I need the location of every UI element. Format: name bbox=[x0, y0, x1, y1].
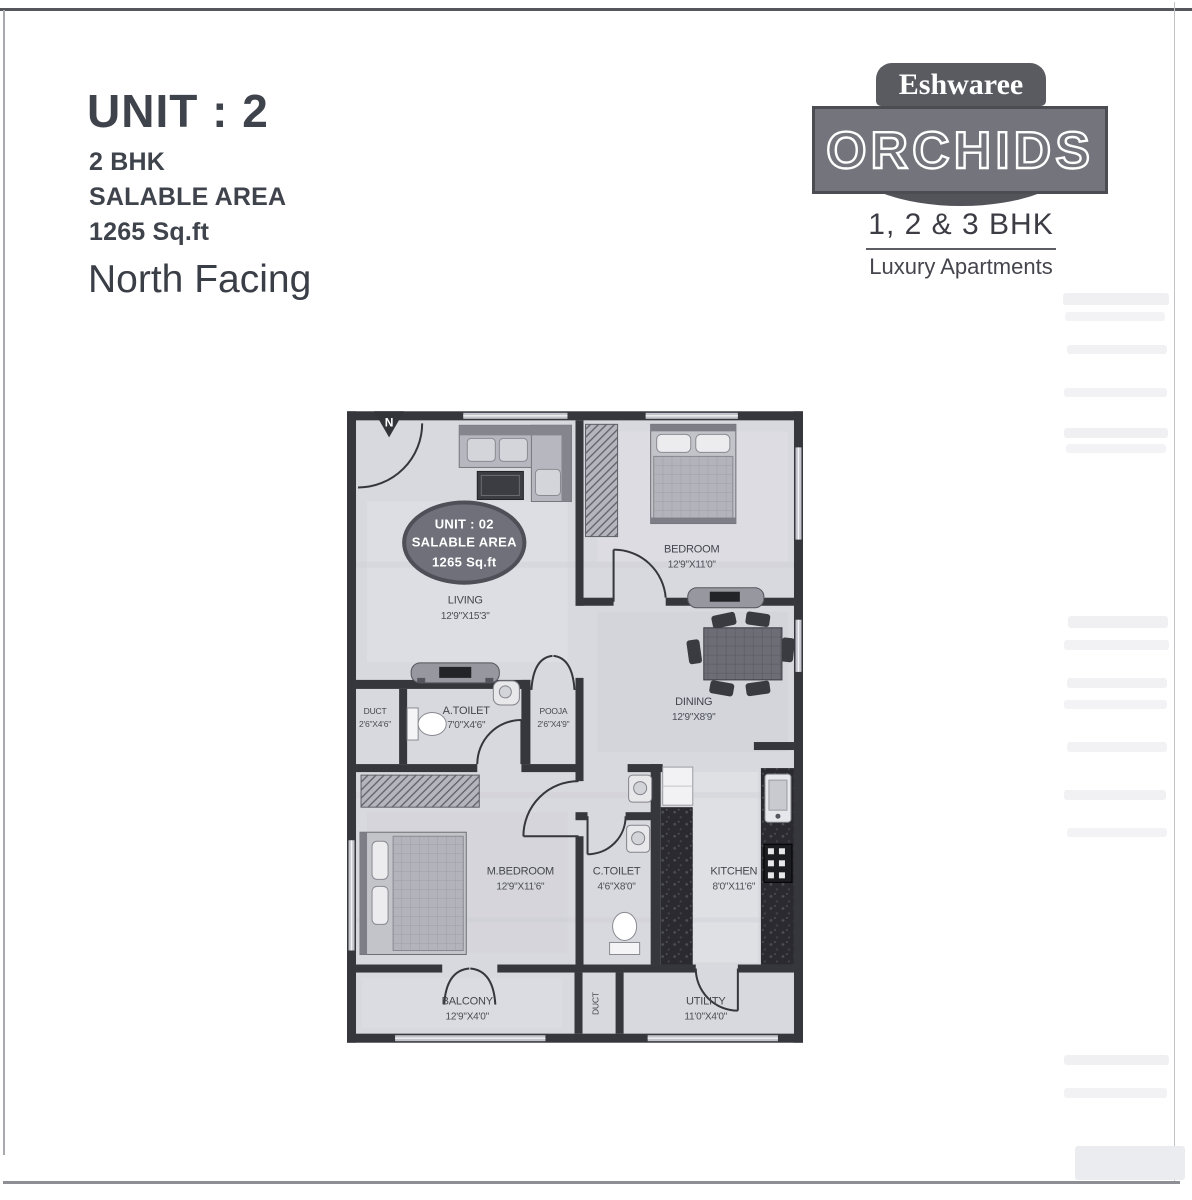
badge-line3: 1265 Sq.ft bbox=[432, 555, 497, 570]
wardrobe-mbedroom bbox=[361, 775, 479, 807]
project-logo: Eshwaree ORCHIDS 1, 2 & 3 BHK Luxury Apa… bbox=[810, 60, 1112, 285]
room-dims-pooja: 2'6"X4'9" bbox=[537, 719, 569, 729]
logo-rule bbox=[866, 248, 1056, 250]
room-dims-bedroom: 12'9"X11'0" bbox=[668, 560, 717, 571]
scan-artifact bbox=[1064, 1055, 1169, 1065]
scan-artifact bbox=[1065, 312, 1165, 321]
salable-area-label: SALABLE AREA bbox=[89, 183, 286, 212]
wardrobe-bedroom bbox=[586, 424, 618, 536]
room-label-pooja: POOJA bbox=[540, 706, 568, 716]
bed-bedroom bbox=[651, 424, 736, 523]
badge-line2: SALABLE AREA bbox=[412, 535, 517, 550]
badge-line1: UNIT : 02 bbox=[435, 517, 494, 532]
room-label-bedroom: BEDROOM bbox=[664, 544, 720, 556]
wash-basin bbox=[627, 825, 650, 852]
page-border-bottom bbox=[3, 1181, 1180, 1184]
scan-artifact bbox=[1068, 616, 1168, 628]
bed-mbedroom bbox=[360, 832, 466, 954]
kitchen-hob bbox=[764, 844, 792, 882]
room-label-mbedroom: M.BEDROOM bbox=[487, 865, 554, 877]
logo-brand-text: Eshwaree bbox=[899, 68, 1023, 102]
coffee-table bbox=[477, 471, 523, 499]
wash-basin bbox=[629, 775, 652, 802]
room-dims-mbedroom: 12'9"X11'6" bbox=[496, 881, 545, 892]
scan-artifact bbox=[1066, 444, 1166, 453]
scan-artifact bbox=[1064, 790, 1166, 800]
scan-artifact bbox=[1063, 293, 1169, 305]
room-dims-utility: 11'0"X4'0" bbox=[684, 1012, 727, 1023]
room-label-duct2: DUCT bbox=[591, 992, 601, 1015]
unit-title: UNIT : 2 bbox=[87, 84, 269, 138]
scan-artifact bbox=[1067, 742, 1167, 752]
logo-brand-banner: Eshwaree bbox=[876, 63, 1046, 106]
room-label-balcony: BALCONY bbox=[442, 996, 494, 1008]
room-dims-living: 12'9"X15'3" bbox=[441, 611, 490, 622]
scan-artifact bbox=[1067, 828, 1167, 837]
room-label-dining: DINING bbox=[675, 696, 712, 708]
logo-bhk-line: 1, 2 & 3 BHK bbox=[810, 208, 1112, 242]
room-label-kitchen: KITCHEN bbox=[710, 865, 757, 877]
page-border-top bbox=[0, 8, 1192, 11]
logo-tagline: Luxury Apartments bbox=[810, 254, 1112, 280]
room-dims-dining: 12'9"X8'9" bbox=[672, 712, 716, 723]
scan-artifact bbox=[1067, 678, 1167, 688]
salable-area-value: 1265 Sq.ft bbox=[89, 218, 209, 247]
corner-basin bbox=[493, 681, 519, 705]
tv-unit-living bbox=[411, 663, 499, 683]
scan-artifact bbox=[1064, 388, 1167, 397]
north-label: N bbox=[385, 415, 394, 429]
page-border-left bbox=[3, 10, 5, 1155]
scan-artifact bbox=[1067, 345, 1167, 354]
room-dims-ctoilet: 4'6"X8'0" bbox=[598, 881, 637, 892]
unit-bhk: 2 BHK bbox=[89, 148, 165, 177]
scan-artifact bbox=[1064, 640, 1169, 650]
logo-name-text: ORCHIDS bbox=[826, 122, 1094, 180]
unit-badge: UNIT : 02 SALABLE AREA 1265 Sq.ft bbox=[404, 503, 524, 583]
tv-unit-bedroom bbox=[688, 588, 764, 608]
room-dims-kitchen: 8'0"X11'6" bbox=[712, 881, 755, 892]
scan-artifact bbox=[1064, 700, 1167, 709]
room-dims-duct: 2'6"X4'6" bbox=[359, 719, 391, 729]
page-border-right bbox=[1174, 2, 1175, 1182]
room-label-atoilet: A.TOILET bbox=[443, 705, 491, 717]
scan-artifact bbox=[1064, 428, 1168, 438]
logo-name-outline: ORCHIDS bbox=[815, 111, 1105, 189]
room-label-duct: DUCT bbox=[364, 706, 387, 716]
brochure-page: UNIT : 2 2 BHK SALABLE AREA 1265 Sq.ft N… bbox=[0, 0, 1192, 1200]
floorplan-svg: UNIT : 02 SALABLE AREA 1265 Sq.ft bbox=[347, 411, 803, 1043]
room-label-ctoilet: C.TOILET bbox=[593, 865, 641, 877]
toilet-wc bbox=[610, 912, 640, 954]
logo-name-banner: ORCHIDS bbox=[812, 106, 1108, 194]
scan-artifact bbox=[1064, 1088, 1167, 1098]
room-label-living: LIVING bbox=[448, 595, 483, 607]
room-dims-balcony: 12'9"X4'0" bbox=[446, 1012, 490, 1023]
room-label-utility: UTILITY bbox=[686, 996, 726, 1008]
facing-direction: North Facing bbox=[88, 258, 311, 302]
scan-artifact bbox=[1075, 1146, 1185, 1180]
kitchen-sink bbox=[765, 774, 791, 822]
room-dims-atoilet: 7'0"X4'6" bbox=[447, 720, 486, 731]
